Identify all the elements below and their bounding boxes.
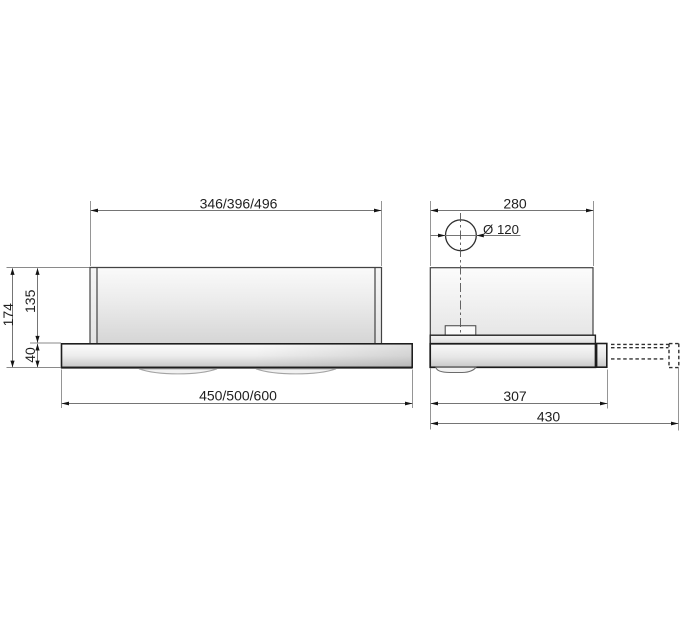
svg-text:450/500/600: 450/500/600 [199, 387, 277, 403]
svg-text:430: 430 [537, 409, 561, 425]
svg-text:Ø 120: Ø 120 [483, 222, 519, 237]
svg-text:280: 280 [503, 195, 527, 211]
svg-text:346/396/496: 346/396/496 [200, 196, 278, 212]
svg-text:307: 307 [503, 388, 527, 404]
svg-text:40: 40 [22, 347, 38, 363]
svg-text:135: 135 [22, 289, 38, 313]
svg-text:174: 174 [0, 303, 16, 327]
